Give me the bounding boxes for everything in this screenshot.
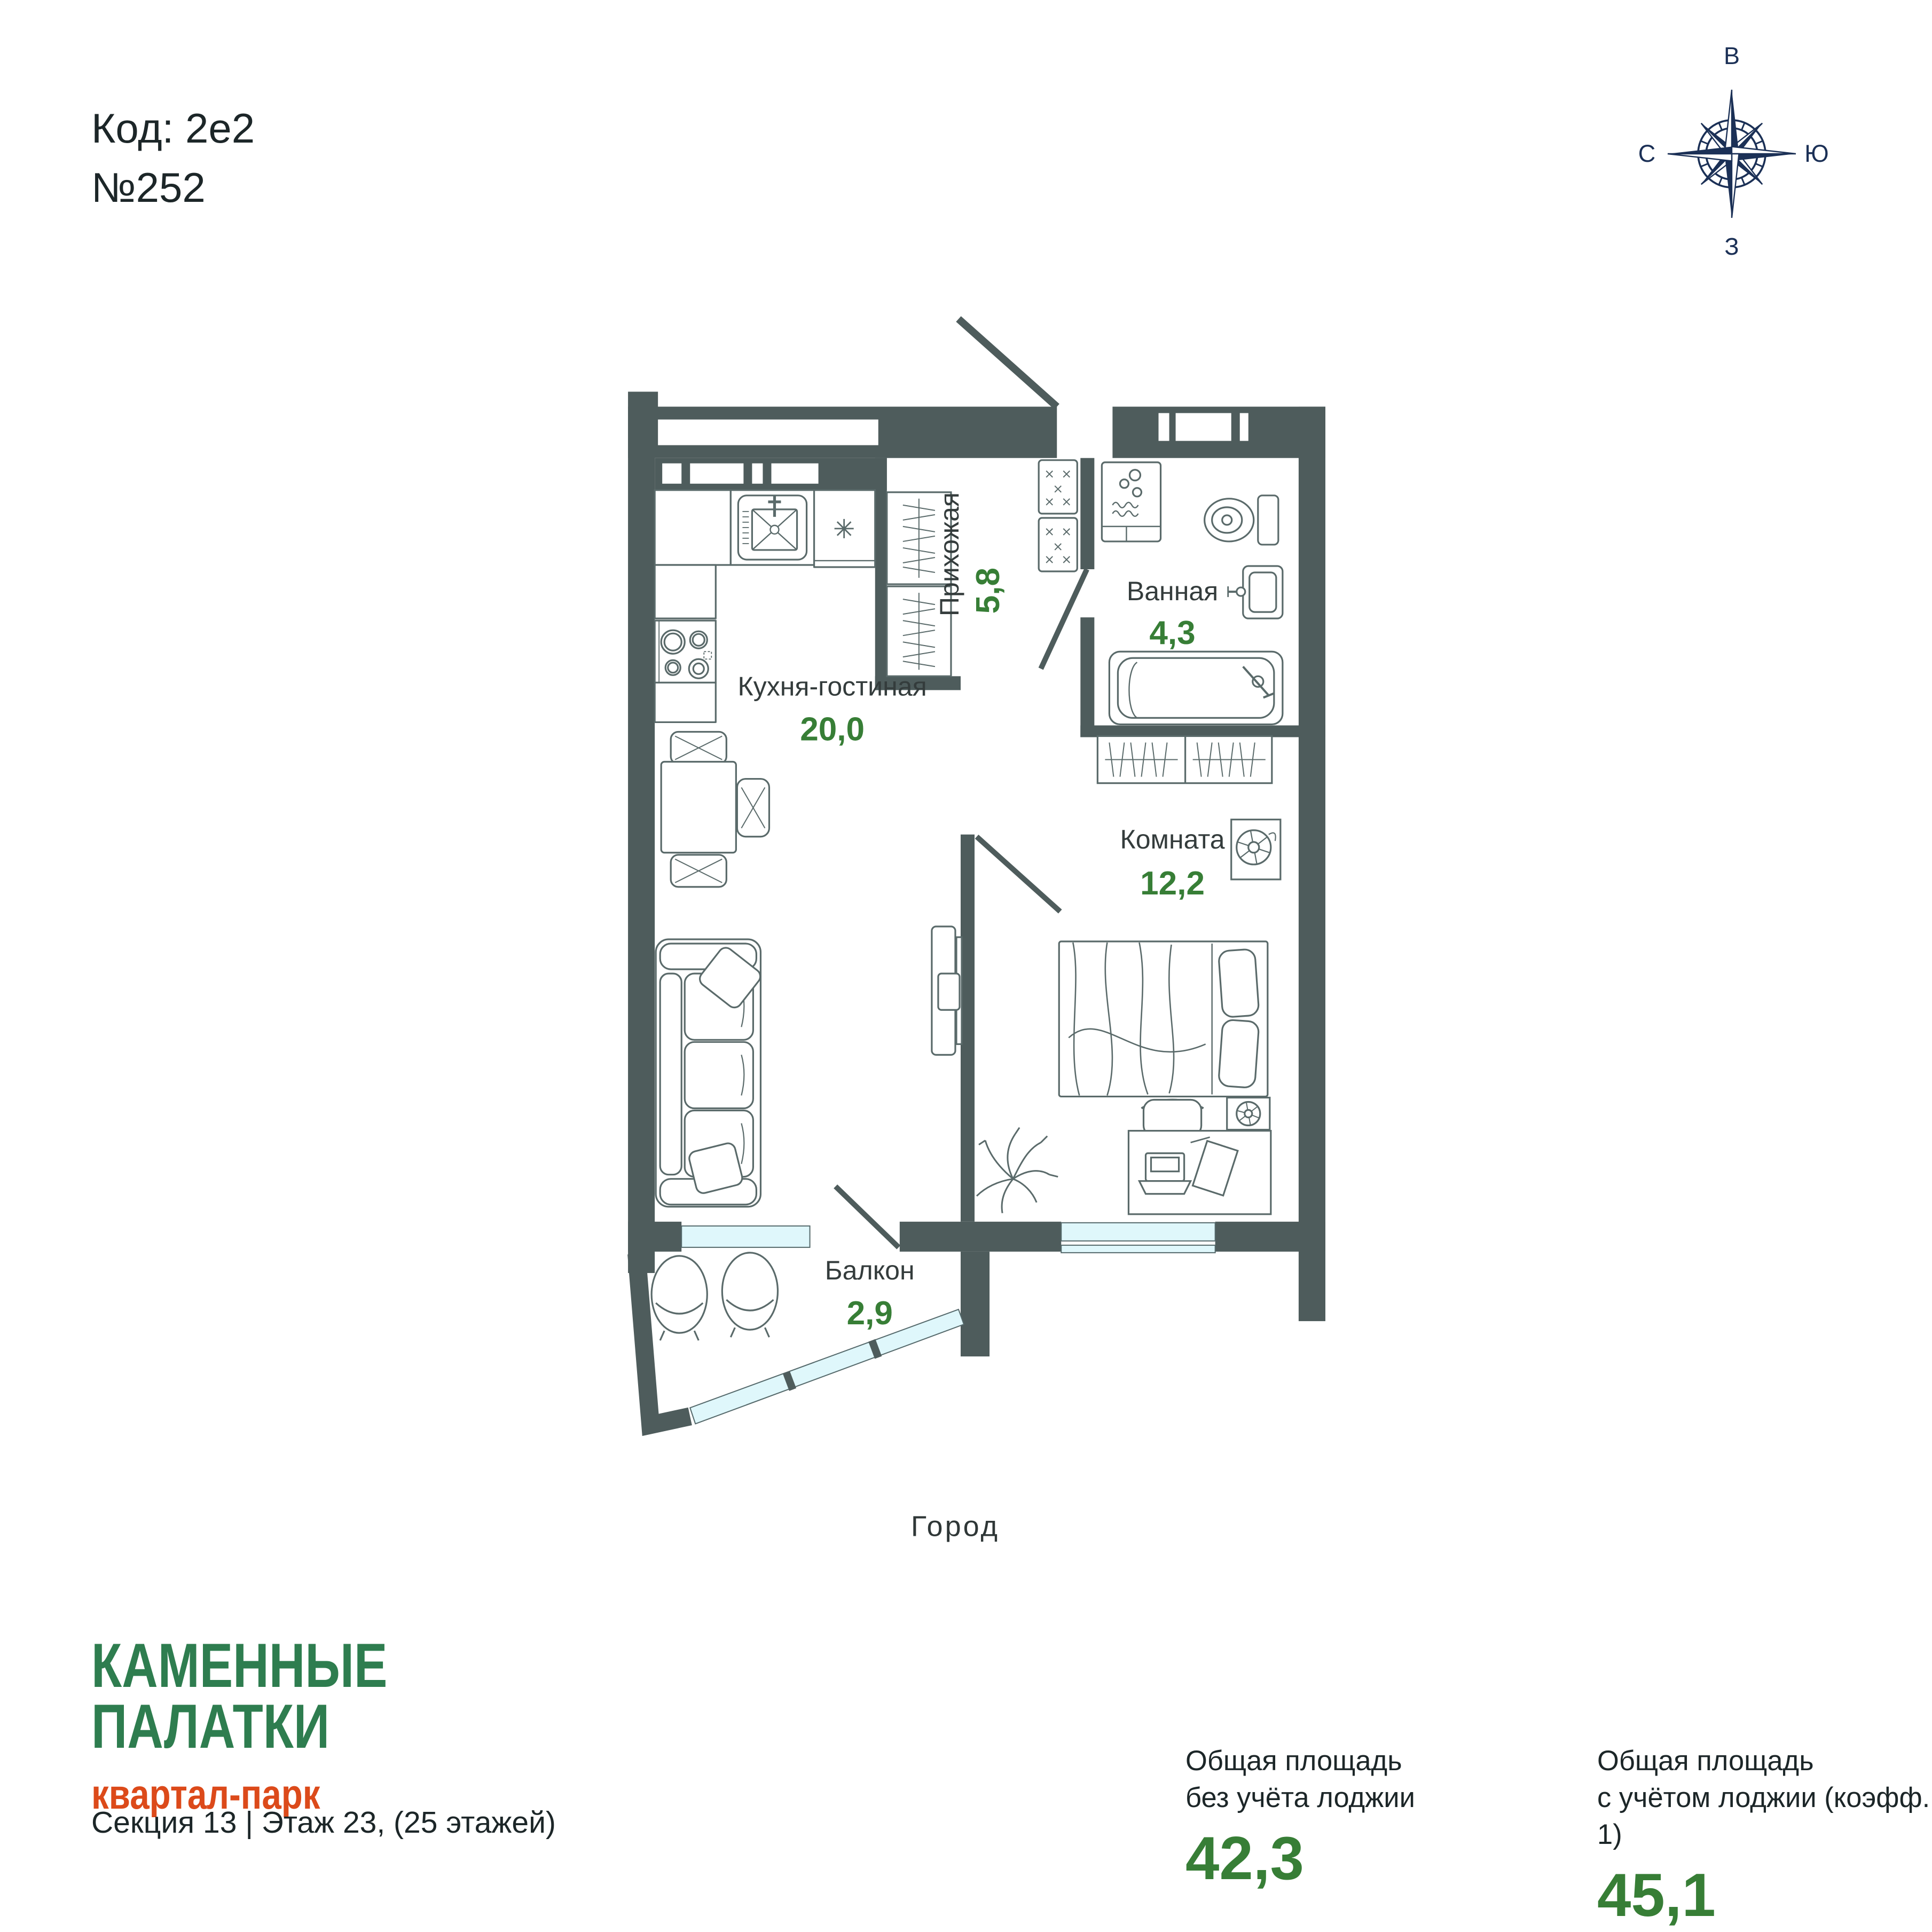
balcony-door-swing — [836, 1187, 899, 1247]
room-area-bathroom: 4,3 — [1149, 615, 1195, 651]
bedroom-wardrobe — [1097, 736, 1271, 783]
total-area-label-2: без учёта лоджии — [1185, 1780, 1415, 1817]
bathtub-icon — [1109, 651, 1282, 724]
balcony-chairs — [651, 1253, 777, 1340]
room-area-kitchen: 20,0 — [800, 711, 865, 748]
room-area-bedroom: 12,2 — [1140, 865, 1205, 902]
bathroom-sink-icon — [1228, 566, 1283, 618]
sofa-icon — [656, 939, 763, 1207]
room-label-kitchen: Кухня-гостиная — [738, 671, 927, 701]
apartment-code: Код: 2е2 — [91, 99, 255, 159]
room-label-hallway: Прихожая — [934, 492, 964, 616]
apartment-code-block: Код: 2е2 №252 — [91, 99, 255, 217]
vent-unit-icon-2 — [1227, 1097, 1270, 1129]
vent-unit-icon — [1231, 820, 1281, 879]
compass-label-bottom: З — [1724, 233, 1739, 256]
washing-machine-icon — [1102, 462, 1160, 541]
loggia-area-label-1: Общая площадь — [1597, 1743, 1932, 1780]
compass-label-left: С — [1638, 140, 1656, 167]
brand-logo: КАМЕННЫЕ ПАЛАТКИ квартал-парк — [91, 1637, 461, 1820]
total-area-with-loggia-block: Общая площадь с учётом лоджии (коэфф. 1)… — [1597, 1743, 1932, 1932]
total-area-block: Общая площадь без учёта лоджии 42,3 — [1185, 1743, 1415, 1896]
bedroom-door-swing — [977, 837, 1060, 912]
room-label-bathroom: Ванная — [1127, 576, 1218, 606]
toilet-icon — [1205, 496, 1278, 545]
loggia-area-value: 45,1 — [1597, 1864, 1932, 1932]
bedroom-window-sill — [1061, 1245, 1215, 1253]
tv-stand-icon — [932, 926, 962, 1055]
plant-icon — [977, 1128, 1058, 1213]
brand-line1: КАМЕННЫЕ — [91, 1637, 387, 1699]
bed-icon — [1059, 941, 1268, 1096]
view-direction-label: Город — [911, 1511, 1000, 1543]
bedroom-window — [1061, 1223, 1215, 1241]
room-area-balcony: 2,9 — [847, 1295, 893, 1332]
floorplan-page: Код: 2е2 №252 — [0, 0, 1932, 1932]
living-window — [681, 1226, 810, 1247]
apartment-number: №252 — [91, 159, 255, 218]
brand-line2: ПАЛАТКИ — [91, 1699, 387, 1760]
room-area-hallway: 5,8 — [970, 568, 1007, 614]
total-area-label-1: Общая площадь — [1185, 1743, 1415, 1780]
entry-door-swing — [959, 319, 1057, 406]
section-floor-info: Секция 13 | Этаж 23, (25 этажей) — [91, 1807, 556, 1842]
compass-label-right: Ю — [1804, 140, 1828, 167]
total-area-value: 42,3 — [1185, 1827, 1415, 1896]
compass-cardinal-points — [1668, 90, 1796, 218]
entry-boxes — [1039, 460, 1077, 571]
room-label-bedroom: Комната — [1120, 824, 1225, 854]
compass-rose-icon: В Ю С З — [1631, 32, 1833, 256]
compass-label-top: В — [1724, 42, 1740, 69]
dining-set — [661, 732, 769, 886]
balcony-glazing — [690, 1309, 964, 1424]
floor-plan: Прихожая 5,8 Ванная 4,3 Кухня-гостиная 2… — [602, 300, 1330, 1562]
bathroom-door-swing — [1041, 569, 1087, 669]
room-label-balcony: Балкон — [825, 1255, 915, 1285]
loggia-area-label-2: с учётом лоджии (коэфф. 1) — [1597, 1780, 1932, 1854]
